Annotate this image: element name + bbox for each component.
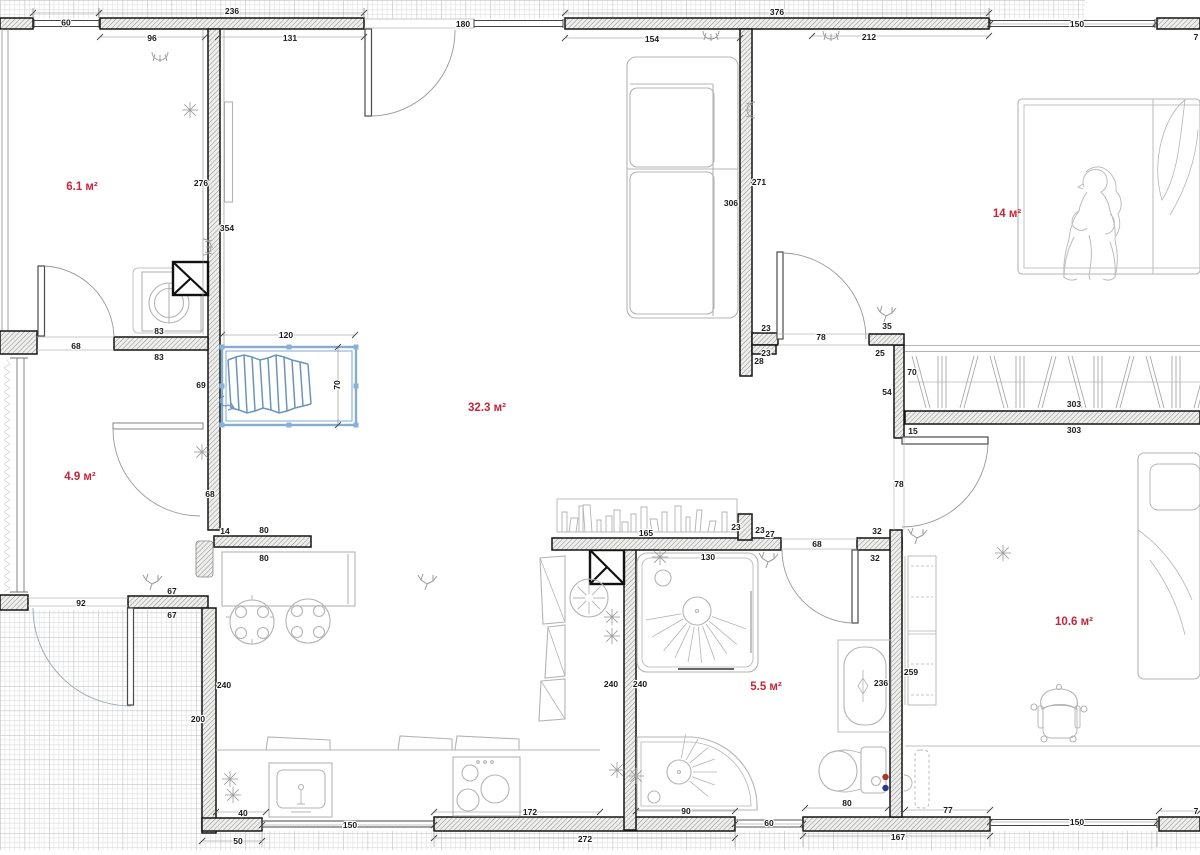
svg-text:10.6 м²: 10.6 м² — [1055, 616, 1093, 628]
svg-text:80: 80 — [842, 798, 852, 808]
svg-text:236: 236 — [225, 6, 239, 16]
svg-text:240: 240 — [633, 679, 647, 689]
svg-text:7: 7 — [1194, 806, 1199, 816]
svg-text:303: 303 — [1067, 425, 1081, 435]
svg-text:4.9 м²: 4.9 м² — [64, 471, 96, 483]
svg-text:80: 80 — [259, 525, 269, 535]
svg-text:272: 272 — [578, 834, 592, 844]
svg-text:77: 77 — [943, 805, 953, 815]
svg-text:25: 25 — [875, 348, 885, 358]
svg-text:83: 83 — [154, 326, 164, 336]
svg-text:23: 23 — [761, 323, 771, 333]
svg-text:14: 14 — [220, 526, 230, 536]
svg-text:354: 354 — [220, 223, 234, 233]
svg-text:240: 240 — [604, 679, 618, 689]
svg-text:15: 15 — [908, 426, 918, 436]
svg-text:67: 67 — [167, 586, 177, 596]
svg-text:35: 35 — [882, 321, 892, 331]
svg-text:259: 259 — [904, 667, 918, 677]
svg-text:70: 70 — [907, 367, 917, 377]
svg-text:303: 303 — [1067, 399, 1081, 409]
svg-text:150: 150 — [1070, 19, 1084, 29]
svg-text:54: 54 — [882, 387, 892, 397]
svg-text:6.1 м²: 6.1 м² — [66, 181, 98, 193]
svg-text:69: 69 — [196, 380, 206, 390]
svg-text:92: 92 — [76, 598, 86, 608]
svg-text:78: 78 — [816, 332, 826, 342]
svg-text:90: 90 — [681, 806, 691, 816]
svg-text:150: 150 — [1070, 817, 1084, 827]
svg-text:172: 172 — [523, 807, 537, 817]
svg-text:271: 271 — [752, 177, 766, 187]
svg-text:78: 78 — [894, 479, 904, 489]
svg-text:240: 240 — [217, 680, 231, 690]
svg-text:130: 130 — [701, 552, 715, 562]
svg-text:83: 83 — [154, 352, 164, 362]
svg-text:180: 180 — [456, 19, 470, 29]
svg-text:212: 212 — [862, 32, 876, 42]
svg-text:5.5 м²: 5.5 м² — [750, 681, 782, 693]
svg-text:236: 236 — [874, 678, 888, 688]
svg-text:131: 131 — [283, 33, 297, 43]
svg-text:165: 165 — [639, 528, 653, 538]
svg-text:40: 40 — [238, 808, 248, 818]
svg-text:376: 376 — [770, 7, 784, 17]
svg-text:14 м²: 14 м² — [993, 208, 1021, 220]
svg-text:32.3 м²: 32.3 м² — [468, 402, 506, 414]
svg-text:68: 68 — [71, 341, 81, 351]
svg-text:154: 154 — [645, 34, 659, 44]
svg-text:276: 276 — [194, 178, 208, 188]
svg-text:7: 7 — [1194, 32, 1199, 42]
svg-text:306: 306 — [724, 198, 738, 208]
svg-text:96: 96 — [147, 33, 157, 43]
svg-text:28: 28 — [754, 356, 764, 366]
svg-text:120: 120 — [279, 330, 293, 340]
svg-text:167: 167 — [891, 832, 905, 842]
svg-text:60: 60 — [764, 818, 774, 828]
svg-text:23: 23 — [755, 525, 765, 535]
svg-text:68: 68 — [205, 489, 215, 499]
svg-text:67: 67 — [167, 610, 177, 620]
svg-text:68: 68 — [812, 539, 822, 549]
svg-text:50: 50 — [233, 836, 243, 846]
svg-text:150: 150 — [343, 820, 357, 830]
svg-text:32: 32 — [872, 526, 882, 536]
svg-text:27: 27 — [765, 529, 775, 539]
svg-text:200: 200 — [191, 714, 205, 724]
svg-text:60: 60 — [61, 18, 71, 28]
svg-text:80: 80 — [259, 553, 269, 563]
svg-text:70: 70 — [332, 380, 342, 390]
svg-text:23: 23 — [731, 522, 741, 532]
svg-text:32: 32 — [870, 553, 880, 563]
